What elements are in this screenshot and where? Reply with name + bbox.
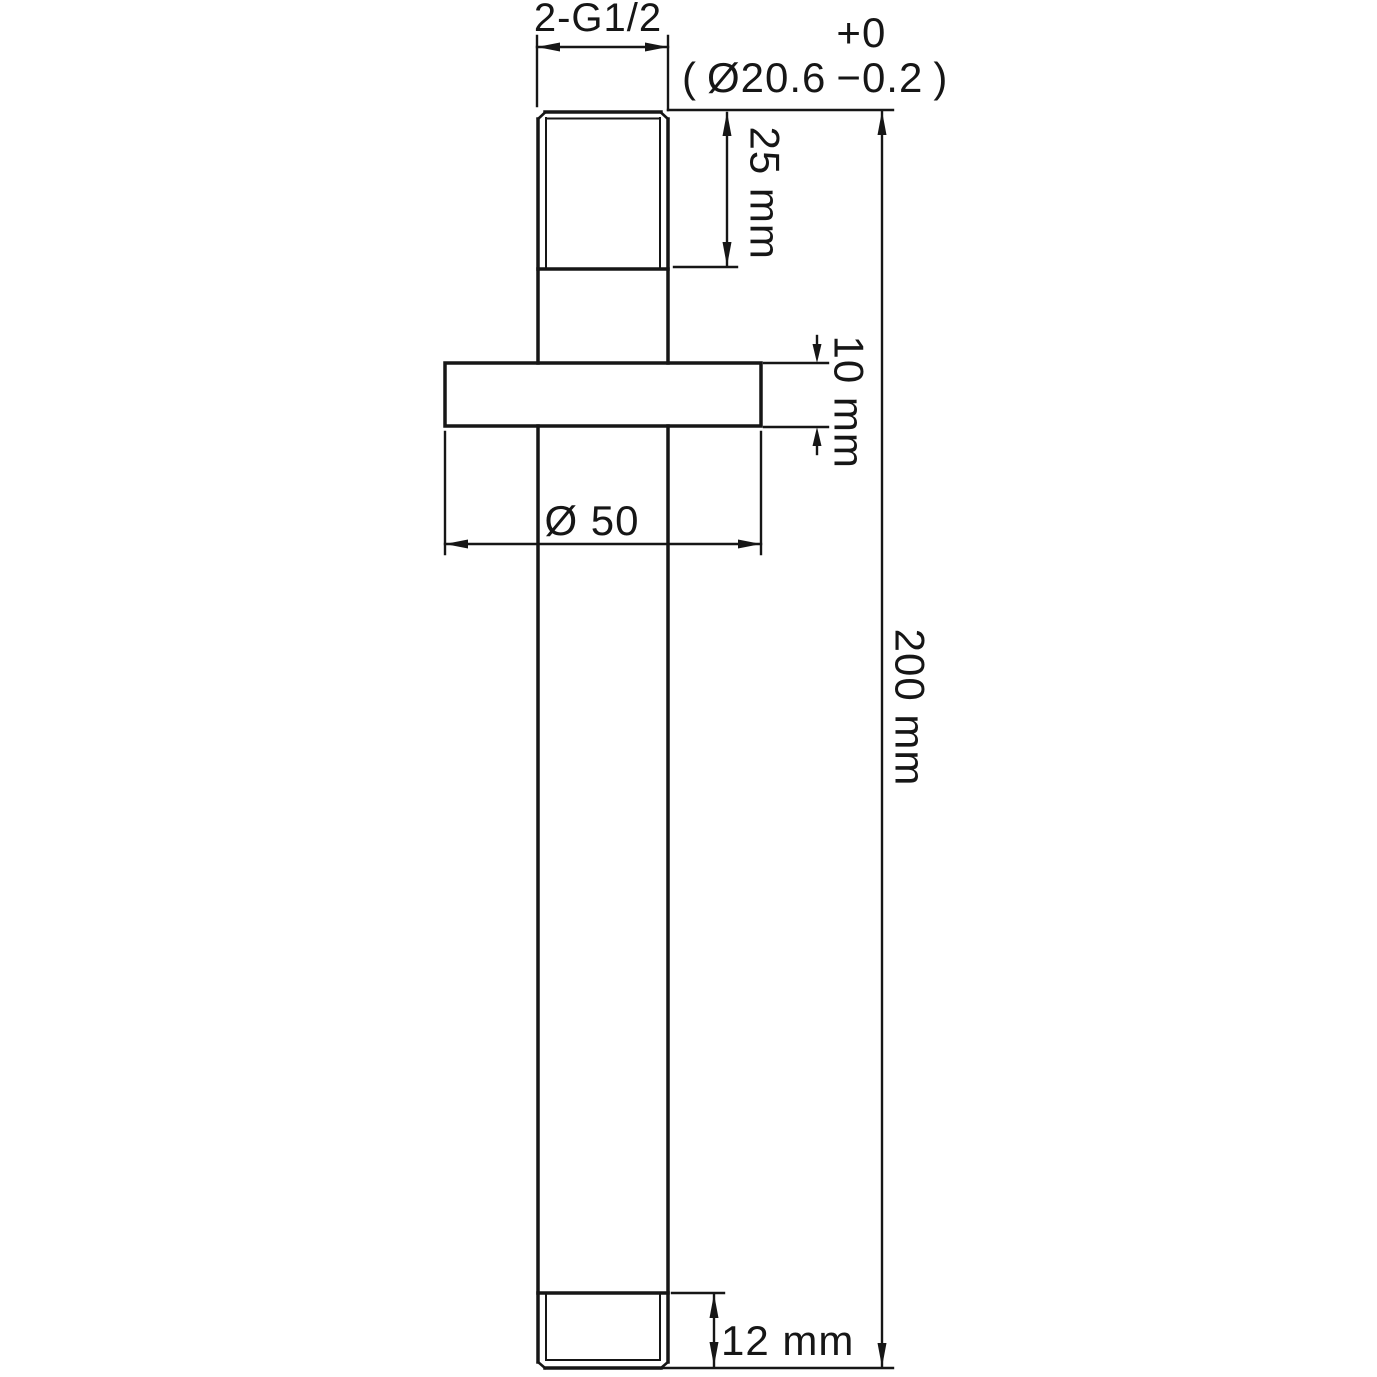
arrow-left — [445, 540, 468, 549]
bottom-thread — [538, 1293, 668, 1368]
label-top-thread-length: 25 mm — [743, 127, 788, 257]
arrow-up — [723, 112, 732, 136]
tolerance-upper: +0 — [836, 10, 886, 55]
diameter-note-open-paren: ( — [682, 55, 697, 100]
arrow-down — [878, 1343, 887, 1367]
technical-drawing-canvas: 2-G1/2 ( Ø20.6 +0 −0.2 ) 25 mm 10 mm Ø 5… — [0, 0, 1377, 1377]
dimension-10mm — [764, 336, 828, 454]
label-bottom-thread-length: 12 mm — [721, 1318, 854, 1363]
label-overall-length: 200 mm — [888, 628, 933, 788]
flange — [445, 363, 761, 426]
label-diameter-note: ( Ø20.6 +0 −0.2 ) — [682, 10, 948, 100]
dimension-200mm — [878, 111, 887, 1367]
arrow-left — [537, 43, 560, 52]
dimension-25mm — [674, 112, 737, 267]
arrow-up — [878, 111, 887, 135]
diameter-note-tolerance: +0 −0.2 — [836, 10, 923, 100]
arrow-down — [813, 344, 822, 363]
label-flange-diameter: Ø 50 — [522, 498, 662, 543]
arrow-right — [645, 43, 668, 52]
label-thread-spec: 2-G1/2 — [533, 0, 663, 39]
pipe-body — [538, 119, 668, 1362]
arrow-up — [710, 1294, 719, 1318]
arrow-right — [738, 540, 761, 549]
pipe-lower-edges — [538, 426, 668, 1362]
arrow-down — [710, 1342, 719, 1366]
top-thread — [538, 112, 668, 269]
diameter-note-value: Ø20.6 — [707, 55, 826, 100]
dimension-thread-spec — [537, 36, 668, 110]
arrow-down — [723, 242, 732, 266]
tolerance-lower: −0.2 — [836, 55, 923, 100]
flange-outline — [445, 363, 761, 426]
diameter-note-close-paren: ) — [933, 55, 948, 100]
label-flange-thickness: 10 mm — [827, 336, 872, 466]
drawing-linework — [0, 0, 1377, 1377]
arrow-up — [813, 427, 822, 446]
part-outline — [445, 112, 761, 1368]
